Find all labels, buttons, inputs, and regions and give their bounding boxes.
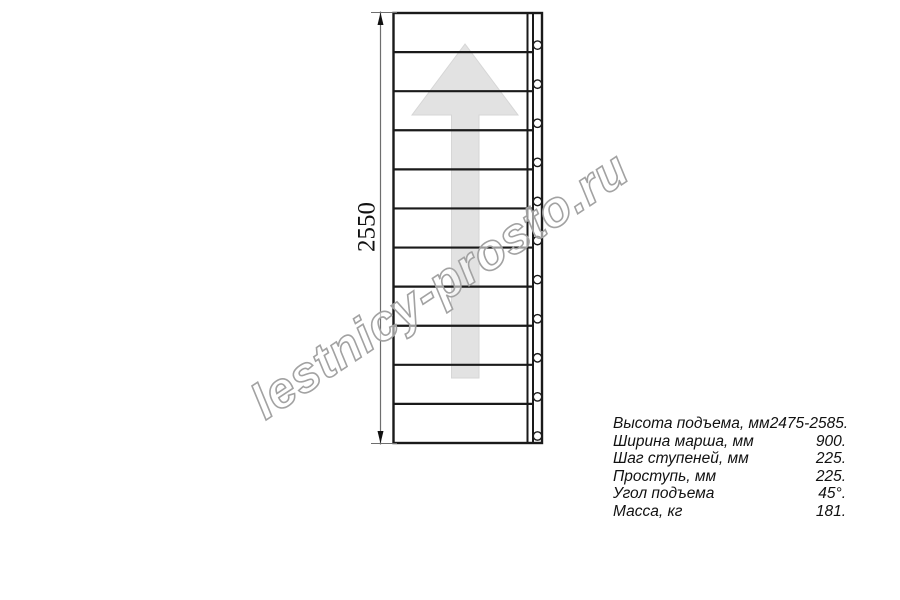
dimension-arrow-down-icon (378, 431, 384, 444)
fastener-circle (533, 275, 541, 283)
fastener-circle (533, 393, 541, 401)
spec-row-angle: Угол подъема 45°. (613, 485, 846, 503)
fastener-circle (533, 315, 541, 323)
spec-label: Масса, кг (613, 503, 682, 521)
dimension-2550: 2550 (354, 12, 398, 445)
fastener-circle (533, 119, 541, 127)
spec-label: Ширина марша, мм (613, 433, 754, 451)
dimension-arrow-up-icon (378, 13, 384, 26)
spec-value: 181. (816, 503, 846, 521)
spec-row-tread: Проступь, мм 225. (613, 468, 846, 486)
dimension-label: 2550 (354, 202, 381, 252)
specs-table: Высота подъема, мм 2475-2585. Ширина мар… (613, 415, 846, 521)
spec-row-step: Шаг ступеней, мм 225. (613, 450, 846, 468)
spec-value: 45°. (818, 485, 846, 503)
fastener-circle (533, 354, 541, 362)
spec-value: 225. (816, 450, 846, 468)
spec-row-mass: Масса, кг 181. (613, 503, 846, 521)
spec-value: 900. (816, 433, 846, 451)
drawing-canvas: 2550 lestnicy-prosto.ru Высота подъема, … (0, 0, 900, 600)
fastener-circle (533, 41, 541, 49)
spec-row-width: Ширина марша, мм 900. (613, 433, 846, 451)
fastener-circle (533, 80, 541, 88)
spec-label: Проступь, мм (613, 468, 716, 486)
spec-label: Высота подъема, мм (613, 415, 770, 433)
spec-row-height: Высота подъема, мм 2475-2585. (613, 415, 846, 433)
spec-value: 2475-2585. (770, 415, 848, 433)
fastener-circle (533, 158, 541, 166)
fastener-circle (533, 432, 541, 440)
spec-label: Угол подъема (613, 485, 714, 503)
spec-value: 225. (816, 468, 846, 486)
spec-label: Шаг ступеней, мм (613, 450, 749, 468)
